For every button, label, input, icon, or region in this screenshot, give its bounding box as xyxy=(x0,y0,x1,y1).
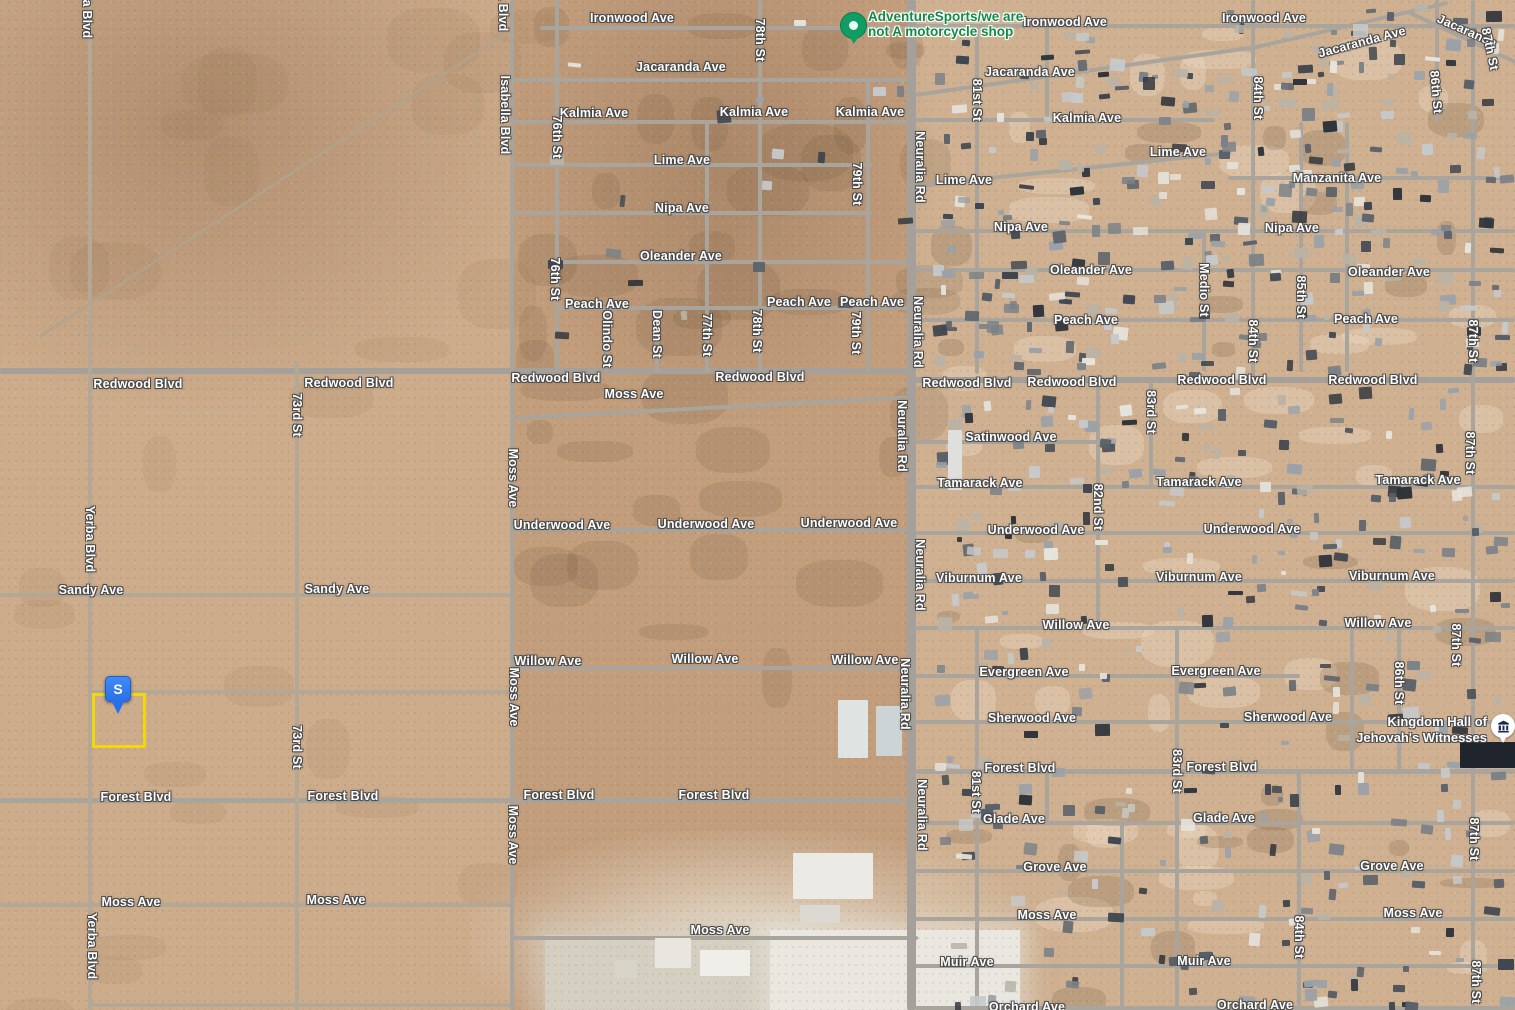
street-label: Moss Ave xyxy=(1383,906,1442,920)
business-name-line1: AdventureSports/we are xyxy=(868,9,1023,24)
street-label: Tamarack Ave xyxy=(937,476,1022,490)
street-label: Kalmia Ave xyxy=(560,106,628,120)
street-label: Kalmia Ave xyxy=(836,105,904,119)
street-label: 87th St xyxy=(1479,26,1502,71)
street-label: 76th St xyxy=(548,257,562,300)
street-label: Orchard Ave xyxy=(1217,998,1293,1010)
street-label: Kalmia Ave xyxy=(1053,111,1121,125)
satellite-map[interactable]: Ironwood AveIronwood AveIronwood AveJaca… xyxy=(0,0,1515,1010)
street-label: Orchard Ave xyxy=(989,1000,1065,1010)
street-label: 79th St xyxy=(850,162,864,205)
street-label: 85th St xyxy=(1294,275,1308,318)
street-label: Underwood Ave xyxy=(988,523,1085,537)
street-label: Olindo St xyxy=(600,310,614,367)
street-label: Redwood Blvd xyxy=(1328,373,1417,387)
street-label: Ironwood Ave xyxy=(1222,11,1306,25)
street-label: 76th St xyxy=(550,115,564,158)
street-label: Jacaranda Ave xyxy=(1317,24,1407,61)
street-label: 84th St xyxy=(1251,76,1265,119)
street-label: Redwood Blvd xyxy=(511,371,600,385)
kingdom-hall-line2: Jehovah's Witnesses xyxy=(1356,730,1487,746)
street-label: Grove Ave xyxy=(1023,860,1086,874)
street-label: Redwood Blvd xyxy=(93,377,182,391)
street-label: Neuralia Rd xyxy=(911,296,925,368)
street-label: 81st St xyxy=(969,771,983,813)
street-label: Muir Ave xyxy=(1177,954,1230,968)
street-label: Moss Ave xyxy=(101,895,160,909)
street-label: 86th St xyxy=(1427,70,1445,114)
street-label: Yerba Blvd xyxy=(85,913,99,980)
street-label: Moss Ave xyxy=(690,923,749,937)
street-label: 87th St xyxy=(1467,817,1481,860)
street-label: 83rd St xyxy=(1170,749,1184,793)
street-label: Tamarack Ave xyxy=(1375,473,1460,487)
street-label: Forest Blvd xyxy=(1187,760,1258,774)
kingdom-hall-line1: Kingdom Hall of xyxy=(1356,714,1487,730)
street-label: Ironwood Ave xyxy=(590,11,674,25)
street-label: Lime Ave xyxy=(654,153,710,167)
street-label: Evergreen Ave xyxy=(979,665,1068,679)
street-label: Willow Ave xyxy=(1043,618,1110,632)
street-label: 81st St xyxy=(970,79,984,121)
street-label: Redwood Blvd xyxy=(715,370,804,384)
pin-tail xyxy=(111,700,125,714)
street-label: Sandy Ave xyxy=(305,582,370,596)
street-label: 78th St xyxy=(753,18,767,61)
street-label: Underwood Ave xyxy=(1204,522,1301,536)
street-label: Viburnum Ave xyxy=(1349,569,1435,583)
street-label: Redwood Blvd xyxy=(1177,373,1266,387)
street-label: Willow Ave xyxy=(515,654,582,668)
street-label: Forest Blvd xyxy=(101,790,172,804)
street-label: Oleander Ave xyxy=(640,249,722,263)
street-label: Neuralia Rd xyxy=(915,779,929,851)
marker-tail xyxy=(849,36,859,44)
street-label: 83rd St xyxy=(1144,390,1158,434)
street-label: Forest Blvd xyxy=(308,789,379,803)
street-label: Peach Ave xyxy=(767,295,831,309)
business-marker-icon[interactable] xyxy=(840,12,867,50)
institution-icon xyxy=(1491,714,1515,738)
street-label: Redwood Blvd xyxy=(1027,375,1116,389)
street-label: Moss Ave xyxy=(604,387,663,401)
street-label: 87th St xyxy=(1469,960,1483,1003)
street-label: 73rd St xyxy=(290,725,304,769)
street-label: Ironwood Ave xyxy=(1023,15,1107,29)
street-label: Underwood Ave xyxy=(514,518,611,532)
street-label: Willow Ave xyxy=(832,653,899,667)
street-label: Moss Ave xyxy=(306,893,365,907)
street-label: Satinwood Ave xyxy=(965,430,1056,444)
street-label: Underwood Ave xyxy=(801,516,898,530)
street-label: Nipa Ave xyxy=(655,201,709,215)
street-label: Grove Ave xyxy=(1360,859,1423,873)
street-label: Peach Ave xyxy=(840,295,904,309)
shop-marker-icon xyxy=(840,12,867,39)
street-label: Forest Blvd xyxy=(524,788,595,802)
street-label: Jacaranda Ave xyxy=(985,65,1075,79)
street-label: Evergreen Ave xyxy=(1171,664,1260,678)
street-label: Sandy Ave xyxy=(59,583,124,597)
marker-tail xyxy=(1499,736,1507,743)
street-label: Willow Ave xyxy=(1345,616,1412,630)
street-label: Moss Ave xyxy=(506,448,520,507)
street-label: 84th St xyxy=(1292,915,1306,958)
street-label: Moss Ave xyxy=(506,805,520,864)
street-label: Forest Blvd xyxy=(679,788,750,802)
street-label: Underwood Ave xyxy=(658,517,755,531)
street-label: Glade Ave xyxy=(983,812,1045,826)
street-label: 84th St xyxy=(1246,319,1260,362)
street-label: Peach Ave xyxy=(1334,312,1398,326)
street-label: Redwood Blvd xyxy=(304,376,393,390)
street-label: Tamarack Ave xyxy=(1156,475,1241,489)
street-label: Redwood Blvd xyxy=(922,376,1011,390)
street-label: Viburnum Ave xyxy=(1156,570,1242,584)
street-label: Glade Ave xyxy=(1193,811,1255,825)
kingdom-hall-label: Kingdom Hall of Jehovah's Witnesses xyxy=(1356,714,1487,746)
street-label: Nipa Ave xyxy=(994,220,1048,234)
street-label: Viburnum Ave xyxy=(936,571,1022,585)
street-label: Neuralia Rd xyxy=(913,131,927,203)
street-label: Lime Ave xyxy=(936,173,992,187)
street-label: 87th St xyxy=(1449,623,1463,666)
street-label: Neuralia Rd xyxy=(895,400,909,472)
street-label: Yerba Blvd xyxy=(83,506,97,573)
street-label: Neuralia Rd xyxy=(913,539,927,611)
street-label: Sherwood Ave xyxy=(988,711,1076,725)
street-label: Nipa Ave xyxy=(1265,221,1319,235)
kingdom-hall-marker-icon[interactable] xyxy=(1491,714,1515,748)
street-label: 86th St xyxy=(1392,661,1406,704)
street-label: Kalmia Ave xyxy=(720,105,788,119)
street-label: 79th St xyxy=(849,311,863,354)
pin-letter: S xyxy=(105,676,131,702)
street-label: Forest Blvd xyxy=(985,761,1056,775)
street-label: Medio St xyxy=(1197,263,1211,317)
street-label: Peach Ave xyxy=(1054,313,1118,327)
street-label: Yerba Blvd xyxy=(80,0,94,38)
business-name-line2: not A motorcycle shop xyxy=(868,24,1023,39)
street-label: Oleander Ave xyxy=(1050,263,1132,277)
street-label: Jacaranda Ave xyxy=(636,60,726,74)
street-label: 73rd St xyxy=(290,393,304,437)
street-label: 78th St xyxy=(750,309,764,352)
street-label: Neuralia Rd xyxy=(898,658,912,730)
street-label: Moss Ave xyxy=(507,667,521,726)
street-label: Isabella Blvd xyxy=(496,0,510,32)
street-label: Dean St xyxy=(650,310,664,358)
business-marker-label[interactable]: AdventureSports/we are not A motorcycle … xyxy=(868,9,1023,39)
selected-parcel-pin[interactable]: S xyxy=(105,676,131,717)
street-label: Isabella Blvd xyxy=(498,75,512,154)
street-label: Willow Ave xyxy=(672,652,739,666)
street-label: Manzanita Ave xyxy=(1293,171,1382,185)
street-label: Muir Ave xyxy=(940,955,993,969)
street-label: 87th St xyxy=(1466,319,1480,362)
street-label: 82nd St xyxy=(1091,484,1105,531)
street-label: Peach Ave xyxy=(565,297,629,311)
street-label: 87th St xyxy=(1463,431,1477,474)
street-label: Oleander Ave xyxy=(1348,265,1430,279)
street-label: Lime Ave xyxy=(1150,145,1206,159)
street-labels-layer: Ironwood AveIronwood AveIronwood AveJaca… xyxy=(0,0,1515,1010)
street-label: Jacaranda xyxy=(1435,12,1499,51)
street-label: 77th St xyxy=(700,313,714,356)
street-label: Moss Ave xyxy=(1017,908,1076,922)
street-label: Sherwood Ave xyxy=(1244,710,1332,724)
